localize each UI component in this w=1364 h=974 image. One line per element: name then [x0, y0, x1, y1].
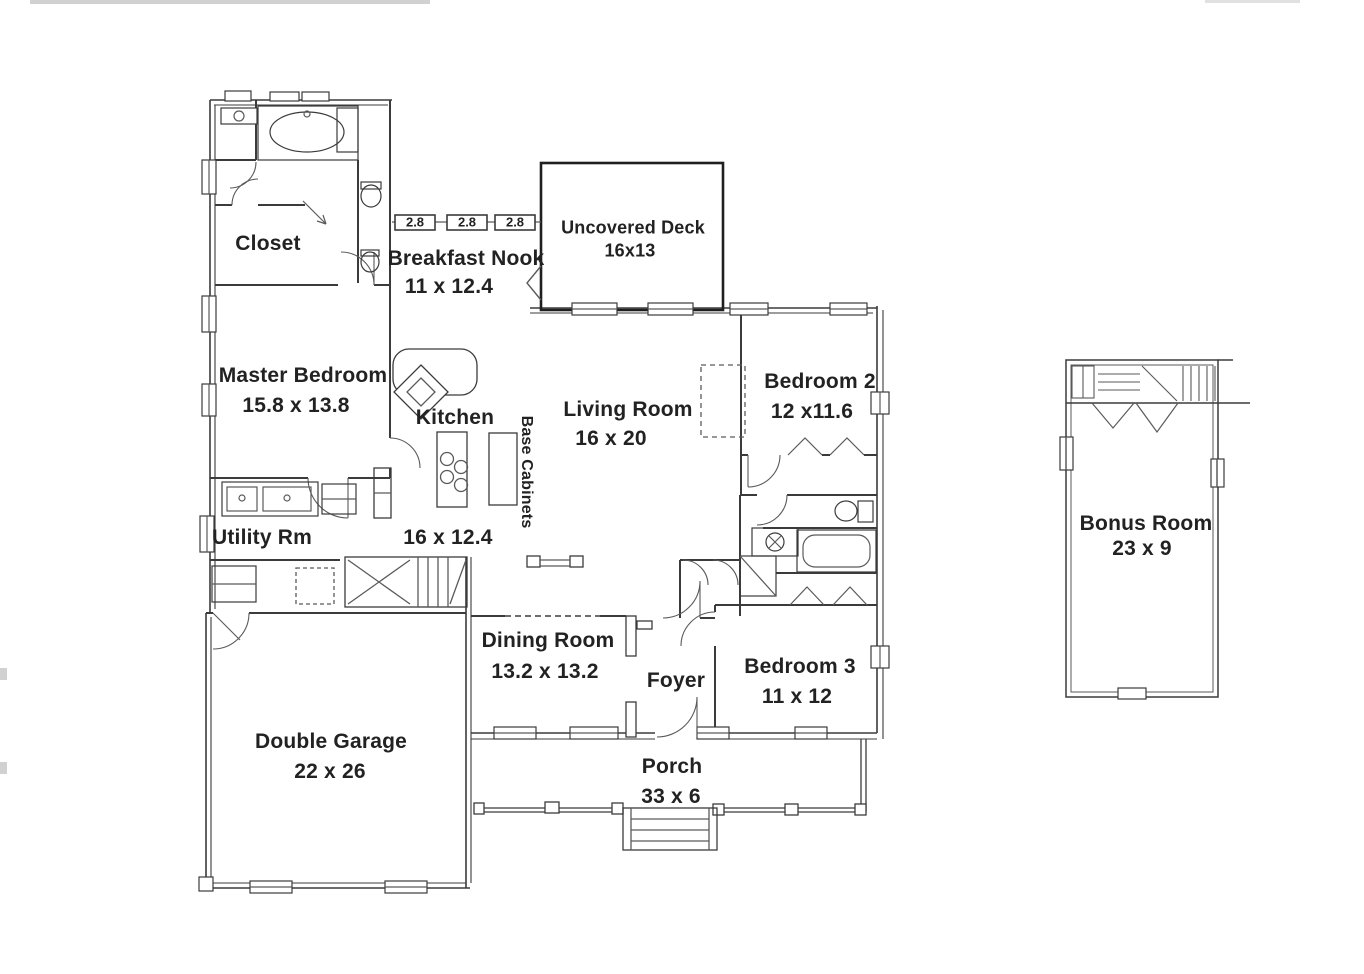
door-sidelight-icon	[626, 702, 636, 737]
room-label-living-room: Living Room	[563, 398, 692, 422]
scan-artifact-left-1	[0, 668, 7, 680]
room-label-porch: Porch	[642, 755, 703, 779]
room-dims-kitchen: 16 x 12.4	[403, 526, 492, 550]
scan-artifact-top	[30, 0, 430, 4]
room-dims-uncovered-deck: 16x13	[604, 241, 655, 262]
label-base-cabinets: Base Cabinets	[517, 416, 535, 529]
scan-artifact-left-2	[0, 762, 7, 774]
porch-post-icon	[545, 802, 559, 813]
window-tag-3: 2.8	[506, 215, 524, 230]
scan-artifact-top-right	[1205, 0, 1300, 3]
room-label-breakfast-nook: Breakfast Nook	[388, 247, 545, 271]
room-dims-dining-room: 13.2 x 13.2	[491, 660, 598, 684]
floor-plan-drawing	[0, 0, 1364, 974]
window-tag-1: 2.8	[406, 215, 424, 230]
bathroom-fixtures	[740, 501, 876, 596]
room-dims-porch: 33 x 6	[641, 785, 701, 809]
fireplace-dashed-icon	[701, 365, 745, 437]
room-label-foyer: Foyer	[647, 669, 705, 693]
deck-door-bay	[527, 266, 541, 300]
garden-tub-icon	[270, 112, 344, 152]
room-dims-breakfast-nook: 11 x 12.4	[405, 275, 493, 299]
window-tag-2: 2.8	[458, 215, 476, 230]
closet-rod-arrow-icon	[303, 201, 326, 224]
room-dims-bedroom-3: 11 x 12	[762, 685, 832, 709]
linen-closet-icon	[337, 108, 358, 152]
porch-post-icon	[474, 803, 484, 814]
closet-bifold-doors	[788, 438, 867, 605]
room-dims-bedroom-2: 12 x11.6	[771, 400, 853, 424]
base-cabinet-icon	[489, 433, 517, 505]
room-dims-double-garage: 22 x 26	[294, 760, 365, 784]
room-label-kitchen: Kitchen	[416, 406, 494, 430]
room-label-bedroom-3: Bedroom 3	[744, 655, 856, 679]
stairs-icon	[296, 557, 467, 607]
front-door-swing	[657, 697, 697, 737]
room-label-bonus-room: Bonus Room	[1080, 512, 1213, 536]
toilet-icon	[361, 185, 381, 207]
kitchen-fixtures	[374, 349, 517, 518]
porch-post-icon	[713, 804, 724, 815]
bonus-door-chevrons	[1092, 403, 1178, 432]
room-label-dining-room: Dining Room	[482, 629, 615, 653]
porch-post-icon	[855, 804, 866, 815]
room-label-master-bedroom: Master Bedroom	[219, 364, 388, 388]
table-icon	[527, 556, 540, 567]
room-dims-living-room: 16 x 20	[575, 427, 646, 451]
room-label-double-garage: Double Garage	[255, 730, 407, 754]
room-label-closet: Closet	[235, 232, 300, 256]
island-icon	[437, 432, 467, 507]
room-dims-master-bedroom: 15.8 x 13.8	[242, 394, 349, 418]
porch-post-icon	[612, 803, 623, 814]
hvac-dashed-box	[296, 568, 334, 604]
column-icon	[626, 616, 636, 656]
room-dims-bonus-room: 23 x 9	[1112, 537, 1172, 561]
floor-plan: Closet Breakfast Nook 11 x 12.4 Uncovere…	[0, 0, 1364, 974]
room-label-utility-room: Utility Rm	[212, 526, 312, 550]
porch-steps-icon	[623, 808, 717, 850]
porch-post-icon	[785, 804, 798, 815]
bath-toilet-icon	[835, 501, 857, 521]
room-label-bedroom-2: Bedroom 2	[764, 370, 876, 394]
room-label-uncovered-deck: Uncovered Deck	[561, 218, 705, 239]
bonus-stairs-icon	[1072, 366, 1215, 401]
